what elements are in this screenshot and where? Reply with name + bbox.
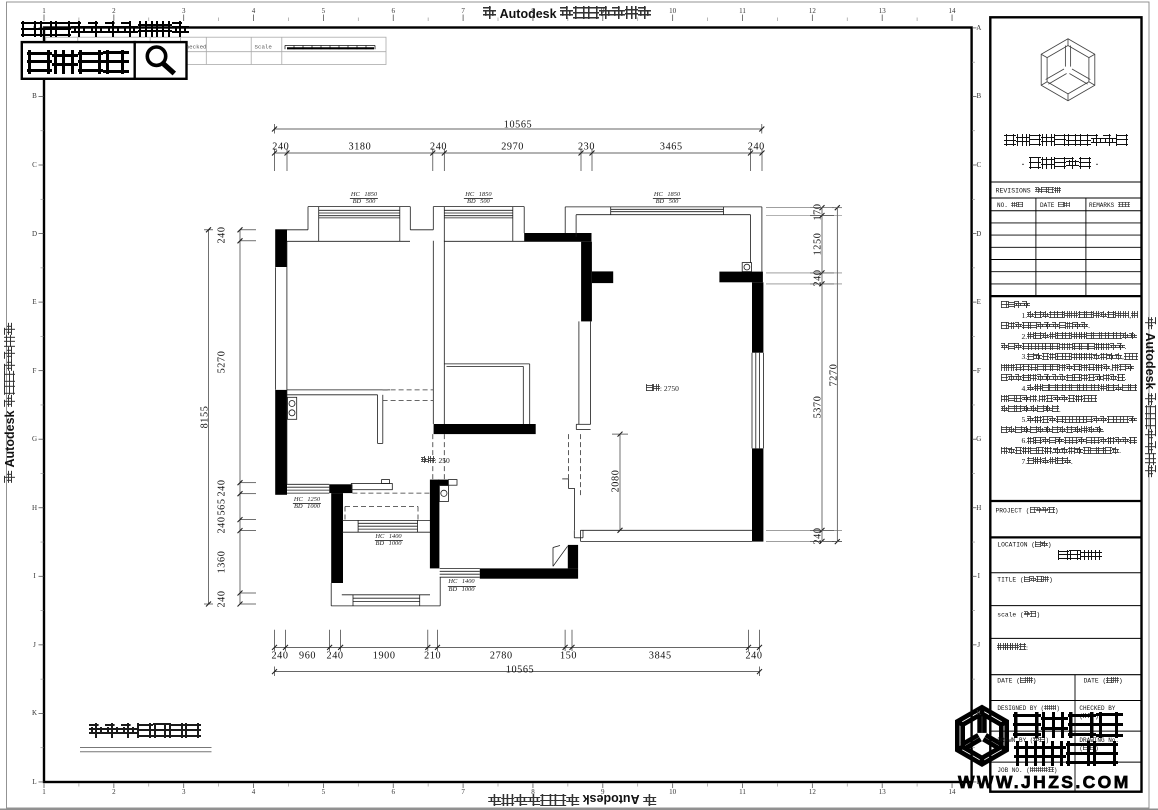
svg-text:Scale: Scale	[255, 44, 273, 51]
